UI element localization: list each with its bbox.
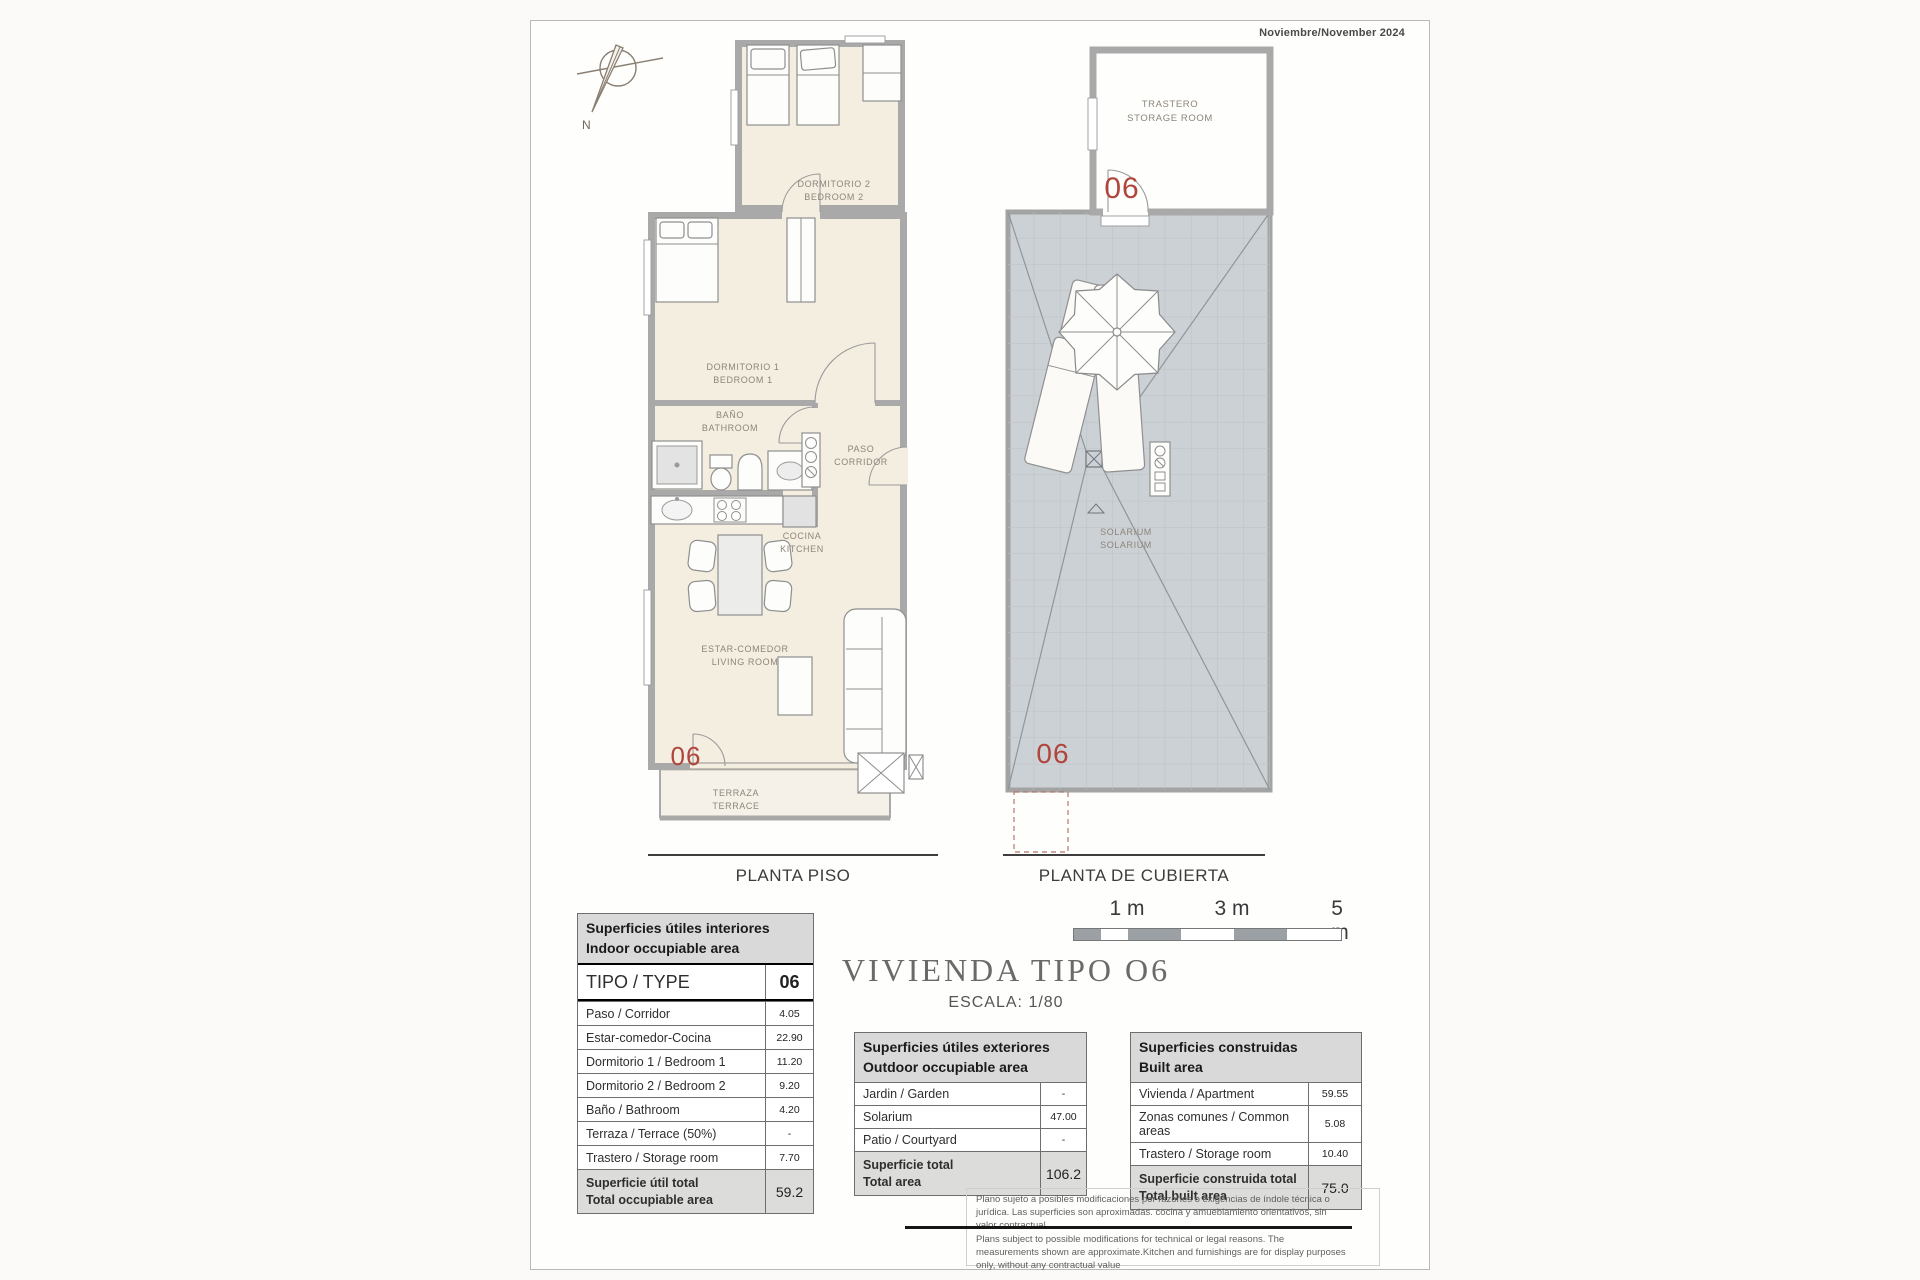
floor-plan: DORMITORIO 2 BEDROOM 2 DORMITORIO 1 BEDR… bbox=[630, 35, 960, 835]
table-total-row: Superficie útil total Total occupiable a… bbox=[578, 1169, 813, 1213]
parasol bbox=[1059, 274, 1175, 390]
table-interior-areas: Superficies útiles interiores Indoor occ… bbox=[577, 913, 814, 1214]
sofa bbox=[844, 609, 906, 763]
fridge bbox=[783, 496, 816, 527]
table-row-type: TIPO / TYPE 06 bbox=[578, 963, 813, 1001]
roof-plan-underline bbox=[1003, 854, 1265, 856]
roof-plan: TRASTERO STORAGE ROOM SOLARIUM SOLARIUM … bbox=[1000, 40, 1290, 860]
table-row: Solarium 47.00 bbox=[855, 1105, 1086, 1128]
window bbox=[1088, 98, 1097, 150]
sheet-date: Noviembre/November 2024 bbox=[1255, 27, 1405, 39]
table-header: Superficies construidas Built area bbox=[1131, 1033, 1361, 1082]
disclaimer-en: Plans subject to possible modifications … bbox=[976, 1234, 1348, 1272]
compass-north-label: N bbox=[582, 118, 591, 132]
title-block: VIVIENDA TIPO O6 ESCALA: 1/80 bbox=[820, 952, 1192, 1012]
scale-bar: 1 m 3 m 5 m bbox=[1073, 897, 1341, 943]
bed-single-1 bbox=[747, 45, 789, 125]
table-row: Paso / Corridor 4.05 bbox=[578, 1001, 813, 1025]
room-label-storage: TRASTERO STORAGE ROOM bbox=[1127, 98, 1213, 126]
chair bbox=[688, 580, 717, 612]
room-label-bedroom2: DORMITORIO 2 BEDROOM 2 bbox=[797, 178, 870, 204]
unit-number-roof: 06 bbox=[1036, 740, 1069, 768]
table-row: Zonas comunes / Common areas 5.08 bbox=[1131, 1105, 1361, 1142]
floor-plan-underline bbox=[648, 854, 938, 856]
unit-number-storage: 06 bbox=[1104, 174, 1139, 204]
room-label-terrace: TERRAZA TERRACE bbox=[712, 787, 759, 813]
scale-label-3m: 3 m bbox=[1214, 897, 1249, 921]
floor-plan-caption: PLANTA PISO bbox=[648, 866, 938, 886]
room-label-solarium: SOLARIUM SOLARIUM bbox=[1100, 526, 1152, 552]
table-row: Terraza / Terrace (50%) - bbox=[578, 1121, 813, 1145]
table-row: Estar-comedor-Cocina 22.90 bbox=[578, 1025, 813, 1049]
roof-plan-drawing bbox=[1000, 40, 1290, 860]
chair bbox=[764, 580, 793, 612]
scale-label-1m: 1 m bbox=[1109, 897, 1144, 921]
roof-plan-caption: PLANTA DE CUBIERTA bbox=[1003, 866, 1265, 886]
storage-step bbox=[1101, 216, 1149, 226]
scale-bar-segments bbox=[1073, 928, 1342, 941]
table-row: Patio / Courtyard - bbox=[855, 1128, 1086, 1151]
sheet-scale: ESCALA: 1/80 bbox=[820, 994, 1192, 1012]
sheet-title: VIVIENDA TIPO O6 bbox=[820, 952, 1192, 989]
table-row: Baño / Bathroom 4.20 bbox=[578, 1097, 813, 1121]
toilet bbox=[710, 455, 732, 490]
window bbox=[644, 590, 651, 685]
bed-double bbox=[656, 218, 718, 302]
table-header: Superficies útiles exteriores Outdoor oc… bbox=[855, 1033, 1086, 1082]
room-label-bedroom1: DORMITORIO 1 BEDROOM 1 bbox=[706, 361, 779, 387]
dining-table bbox=[718, 535, 762, 615]
table-row: Jardin / Garden - bbox=[855, 1082, 1086, 1105]
table-exterior-areas: Superficies útiles exteriores Outdoor oc… bbox=[854, 1032, 1087, 1196]
room-label-bathroom: BAÑO BATHROOM bbox=[702, 409, 758, 435]
table-header: Superficies útiles interiores Indoor occ… bbox=[578, 914, 813, 963]
bidet bbox=[738, 454, 762, 490]
room-label-corridor: PASO CORRIDOR bbox=[834, 443, 888, 469]
washer-column bbox=[802, 433, 820, 487]
closet bbox=[863, 45, 901, 101]
table-row: Trastero / Storage room 7.70 bbox=[578, 1145, 813, 1169]
stairwell bbox=[858, 753, 923, 793]
wardrobe bbox=[787, 218, 815, 302]
window bbox=[731, 90, 738, 145]
table-row: Dormitorio 1 / Bedroom 1 11.20 bbox=[578, 1049, 813, 1073]
table-row: Trastero / Storage room 10.40 bbox=[1131, 1142, 1361, 1165]
plan-sheet: { "page": { "date": "Noviembre/November … bbox=[0, 0, 1920, 1280]
room-label-living: ESTAR-COMEDOR LIVING ROOM bbox=[701, 643, 788, 669]
window bbox=[644, 240, 651, 315]
roof-drain bbox=[1086, 451, 1102, 467]
table-row: Vivienda / Apartment 59.55 bbox=[1131, 1082, 1361, 1105]
table-built-areas: Superficies construidas Built area Vivie… bbox=[1130, 1032, 1362, 1210]
shower bbox=[652, 441, 702, 489]
table-row: Dormitorio 2 / Bedroom 2 9.20 bbox=[578, 1073, 813, 1097]
equipment-unit bbox=[1150, 442, 1170, 496]
window bbox=[845, 36, 885, 43]
bed-single-2 bbox=[797, 45, 839, 125]
dashed-outline bbox=[1014, 792, 1068, 852]
room-label-kitchen: COCINA KITCHEN bbox=[780, 530, 824, 556]
disclaimer-divider bbox=[905, 1226, 1352, 1229]
unit-number-floor: 06 bbox=[671, 743, 702, 769]
floor-plan-drawing bbox=[630, 35, 960, 835]
chair bbox=[687, 540, 716, 573]
kitchen-counter bbox=[651, 496, 783, 524]
